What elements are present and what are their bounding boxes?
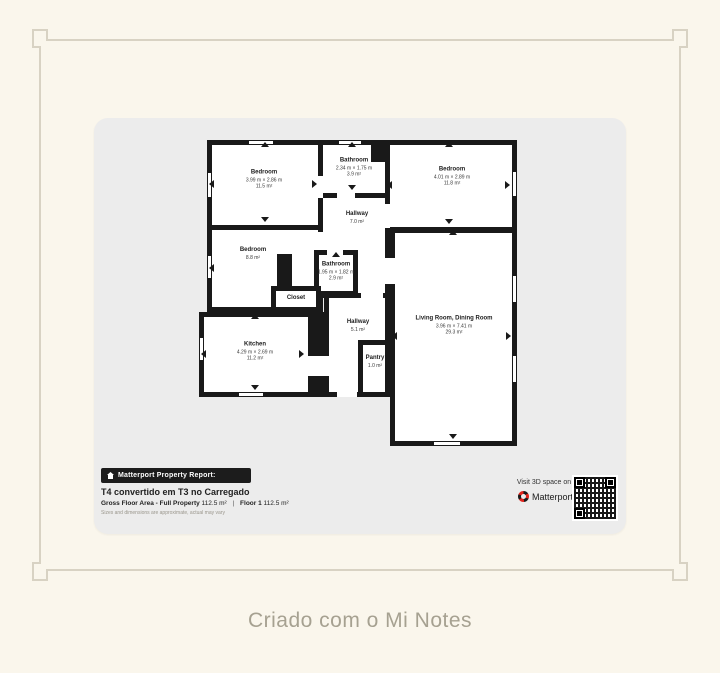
floor-label: Floor 1 xyxy=(240,500,262,507)
matterport-wordmark: Matterport xyxy=(532,492,573,502)
dimension-marker xyxy=(449,230,457,235)
room-living-dining xyxy=(390,228,517,446)
door-opening xyxy=(308,356,329,376)
dimension-marker xyxy=(261,217,269,222)
qr-code xyxy=(572,475,618,521)
dimension-marker xyxy=(449,434,457,439)
dimension-marker xyxy=(392,332,397,340)
house-icon xyxy=(107,472,114,479)
qr-finder xyxy=(574,477,585,488)
room-closet xyxy=(271,286,321,312)
window-marker xyxy=(434,441,460,446)
window-marker xyxy=(512,356,517,382)
door-opening xyxy=(385,204,390,228)
gross-area-label: Gross Floor Area - Full Property xyxy=(101,500,200,507)
dimension-marker xyxy=(312,180,317,188)
note-image-card: Bedroom 3.99 m × 2.86 m 11.5 m² Bathroom… xyxy=(94,118,626,534)
report-badge: Matterport Property Report: xyxy=(101,468,251,483)
dimension-marker xyxy=(251,385,259,390)
dimension-marker xyxy=(261,142,269,147)
window-marker xyxy=(239,392,263,397)
visit-3d-text: Visit 3D space on xyxy=(515,479,573,486)
door-opening xyxy=(318,232,323,250)
dimension-marker xyxy=(201,350,206,358)
area-summary: Gross Floor Area - Full Property 112.5 m… xyxy=(101,500,289,507)
qr-finder xyxy=(605,477,616,488)
door-opening xyxy=(385,258,395,284)
report-badge-label: Matterport Property Report: xyxy=(118,472,216,479)
door-opening xyxy=(361,290,383,300)
dimension-marker xyxy=(445,219,453,224)
dimension-marker xyxy=(348,142,356,147)
matterport-brand: Matterport xyxy=(518,491,573,502)
window-marker xyxy=(512,276,517,302)
door-opening-entrance xyxy=(337,392,357,397)
disclaimer-text: Sizes and dimensions are approximate, ac… xyxy=(101,510,225,516)
dimension-marker xyxy=(506,332,511,340)
gross-area-value: 112.5 m² xyxy=(202,500,227,507)
door-opening xyxy=(337,192,355,199)
dimension-marker xyxy=(348,185,356,190)
app-caption: Criado com o Mi Notes xyxy=(0,609,720,633)
dimension-marker xyxy=(445,142,453,147)
dimension-marker xyxy=(299,350,304,358)
dimension-marker xyxy=(209,264,214,272)
qr-finder xyxy=(574,508,585,519)
dimension-marker xyxy=(332,252,340,257)
floor-plan: Bedroom 3.99 m × 2.86 m 11.5 m² Bathroom… xyxy=(191,130,531,450)
room-pantry xyxy=(358,340,390,397)
separator: | xyxy=(233,500,235,507)
dimension-marker xyxy=(387,181,392,189)
matterport-logo-icon xyxy=(518,491,529,502)
dimension-marker xyxy=(209,180,214,188)
dimension-marker xyxy=(251,314,259,319)
window-marker xyxy=(512,172,517,196)
door-opening xyxy=(318,176,323,198)
dimension-marker xyxy=(505,181,510,189)
property-title: T4 convertido em T3 no Carregado xyxy=(101,487,250,497)
floor-area-value: 112.5 m² xyxy=(264,500,289,507)
